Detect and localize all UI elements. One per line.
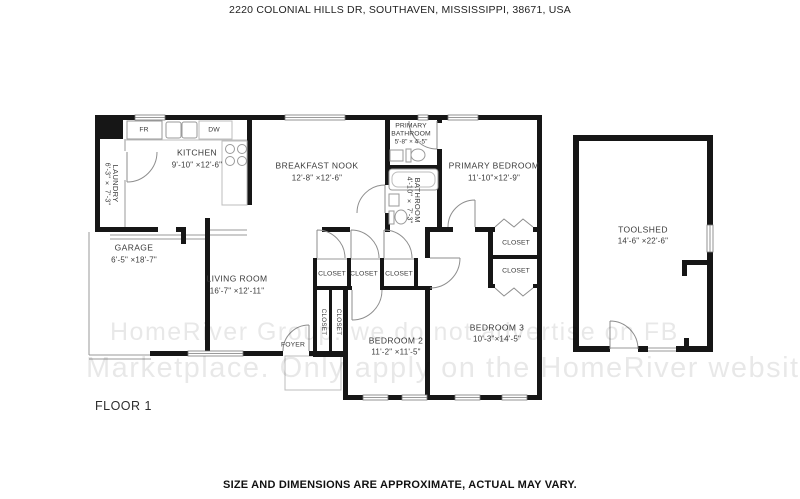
watermark-line2: Marketplace. Only apply on the HomeRiver… [86,352,800,385]
label-garage-dims: 6'-5" ×18'-7" [111,257,157,266]
label-breakfast-nook: BREAKFAST NOOK [276,161,359,170]
watermark-line1: HomeRiver Group: we do not advertise on … [110,318,679,347]
floorplan-page: 2220 COLONIAL HILLS DR, SOUTHAVEN, MISSI… [0,0,800,499]
label-primary-bedroom-dims: 11'-10"×12'-9" [468,175,520,184]
label-closet-hall-2: CLOSET [350,270,378,277]
label-breakfast-nook-dims: 12'-8" ×12'-6" [292,175,342,184]
label-laundry: LAUNDRY 6'-3" × 7'-3" [102,163,120,206]
label-closet-hall-3: CLOSET [385,270,413,277]
label-fridge: FR [139,126,148,133]
label-closet-bedroom3: CLOSET [502,267,530,274]
floor-label: FLOOR 1 [95,399,152,413]
label-primary-bathroom-2: BATHROOM [391,130,431,137]
label-primary-bedroom: PRIMARY BEDROOM [449,161,540,170]
label-kitchen-dims: 9'-10" ×12'-6" [172,162,222,171]
label-garage: GARAGE [115,243,154,252]
label-dishwasher: DW [208,126,220,133]
label-primary-bathroom-1: PRIMARY [395,122,427,129]
label-toolshed-dims: 14'-6" ×22'-6" [618,238,668,247]
label-living-room-dims: 16'-7" ×12'-11" [210,288,265,297]
label-kitchen: KITCHEN [177,148,217,157]
label-closet-primary: CLOSET [502,239,530,246]
label-bathroom: BATHROOM 4'-10" × 7'-3" [404,177,422,224]
label-toolshed: TOOLSHED [618,225,668,234]
label-primary-bathroom-dims: 5'-8" × 4'-5" [395,138,428,145]
label-living-room: LIVING ROOM [206,274,267,283]
label-closet-hall-1: CLOSET [318,270,346,277]
disclaimer-footer: SIZE AND DIMENSIONS ARE APPROXIMATE, ACT… [223,479,577,491]
